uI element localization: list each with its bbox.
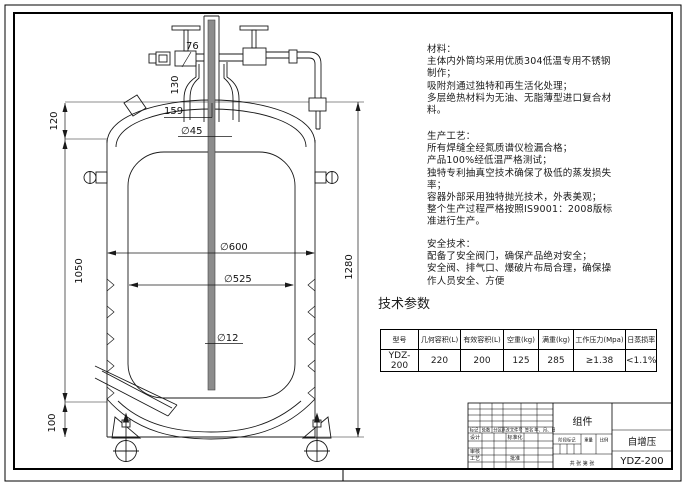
materials-note-body: 主体内外筒均采用优质304低温专用不锈钢 制作； 吸附剂通过独特和再生活化处理；… <box>427 56 665 117</box>
stage-grid-lines <box>553 434 612 454</box>
dim-inner-dia-label: ∅525 <box>224 274 252 285</box>
role-standardize: 标准化 <box>507 434 522 441</box>
col-evaporation-rate: 日蒸损率 <box>626 330 657 350</box>
sheet-note: 共 张 第 张 <box>570 460 595 467</box>
parameters-table: 型号 几何容积(L) 有效容积(L) 空重(kg) 满重(kg) 工作压力(Mp… <box>380 329 657 372</box>
role-review: 审核 <box>470 448 480 455</box>
safety-note: 安全技术： 配备了安全阀门，确保产品绝对安全； 安全阀、排气口、爆破片布局合理，… <box>427 239 665 288</box>
valve-connectors <box>196 54 243 61</box>
value-geometric-volume: 220 <box>419 350 461 372</box>
left-valve-body <box>175 51 196 66</box>
rev-col-count: 处数 <box>482 427 491 434</box>
col-effective-volume: 有效容积(L) <box>461 330 504 350</box>
role-approve: 批准 <box>510 455 520 462</box>
dim-shell-height-label: 1050 <box>74 258 85 283</box>
safety-note-title: 安全技术： <box>427 239 665 251</box>
col-empty-weight: 空重(kg) <box>504 330 539 350</box>
parameters-data-row: YDZ-200 220 200 125 285 ≥1.38 <1.1% <box>381 350 657 372</box>
title-block-main-dividers <box>553 403 612 469</box>
dim-neck-offset-label: 76 <box>186 41 199 52</box>
dip-tube <box>208 20 215 390</box>
rev-col-mark: 标记 <box>470 427 479 434</box>
materials-note: 材料： 主体内外筒均采用优质304低温专用不锈钢 制作； 吸附剂通过独特和再生活… <box>427 44 665 117</box>
rev-col-date: 年、月、日 <box>534 427 555 434</box>
dished-bottom-outer <box>107 399 315 439</box>
process-note-body: 所有焊缝全经氮质谱仪检漏合格； 产品100%经低温严格测试； 独特专利抽真空技术… <box>427 143 665 228</box>
right-valve-stem <box>252 30 256 48</box>
product-name: 自增压 <box>628 436 657 448</box>
left-valve-handle <box>172 26 200 30</box>
dim-head-height-label: 120 <box>49 111 60 130</box>
value-working-pressure: ≥1.38 <box>574 350 626 372</box>
rev-col-sign: 签名 <box>525 427 534 434</box>
title-block: 标记 处数 分区 更改文件号 签名 年、月、日 设计 标准化 审核 工艺 批准 … <box>468 403 672 469</box>
vessel-drawing <box>65 16 364 439</box>
value-evaporation-rate: <1.1% <box>626 350 657 372</box>
right-valve-handle <box>240 26 268 30</box>
pipe-into-annulus <box>316 111 320 129</box>
right-valve-body <box>243 48 266 65</box>
col-geometric-volume: 几何容积(L) <box>419 330 461 350</box>
dim-neck-dia-label: ∅45 <box>181 126 202 137</box>
dim-tube-dia-label: ∅12 <box>217 333 238 344</box>
dome-penetration-fitting <box>309 98 326 111</box>
dim-overall-height-label: 1280 <box>344 254 355 279</box>
role-craft: 工艺 <box>470 456 480 462</box>
dim-outer-dia-label: ∅600 <box>220 242 248 253</box>
leader-neck-offset <box>182 52 191 67</box>
value-model: YDZ-200 <box>381 350 419 372</box>
materials-note-title: 材料： <box>427 44 665 56</box>
value-full-weight: 285 <box>539 350 574 372</box>
col-working-pressure: 工作压力(Mpa) <box>574 330 626 350</box>
stage-col-weight: 重量 <box>584 437 593 444</box>
role-design: 设计 <box>470 434 480 441</box>
casters <box>112 414 331 462</box>
safety-note-body: 配备了安全阀门，确保产品绝对安全； 安全阀、排气口、爆破片布局合理，确保操 作人… <box>427 251 665 288</box>
process-note: 生产工艺： 所有焊缝全经氮质谱仪检漏合格； 产品100%经低温严格测试； 独特专… <box>427 131 665 229</box>
left-coupler <box>156 52 170 65</box>
stage-col-mark: 阶段标记 <box>558 437 576 444</box>
model-number: YDZ-200 <box>619 456 663 467</box>
left-coupler-core <box>159 55 167 62</box>
parameters-header-row: 型号 几何容积(L) 有效容积(L) 空重(kg) 满重(kg) 工作压力(Mp… <box>381 330 657 350</box>
col-model: 型号 <box>381 330 419 350</box>
inline-fitting <box>289 50 297 63</box>
col-full-weight: 满重(kg) <box>539 330 574 350</box>
part-name: 组件 <box>573 415 593 428</box>
parameters-heading: 技术参数 <box>378 293 430 312</box>
left-lifting-lug <box>96 172 107 183</box>
process-note-title: 生产工艺： <box>427 131 665 143</box>
value-empty-weight: 125 <box>504 350 539 372</box>
stage-col-scale: 比例 <box>600 437 609 444</box>
dim-neck-height-label: 130 <box>170 75 181 94</box>
engineering-drawing-sheet: { "page": {"background": "#ffffff", "lin… <box>0 0 686 486</box>
left-end-cap <box>149 54 156 63</box>
dim-neck-plate-label: 159 <box>164 106 183 117</box>
rev-col-docno: 更改文件号 <box>501 427 522 434</box>
value-effective-volume: 200 <box>461 350 504 372</box>
right-lifting-lug <box>315 172 326 183</box>
dim-skirt-height-label: 100 <box>47 413 58 432</box>
